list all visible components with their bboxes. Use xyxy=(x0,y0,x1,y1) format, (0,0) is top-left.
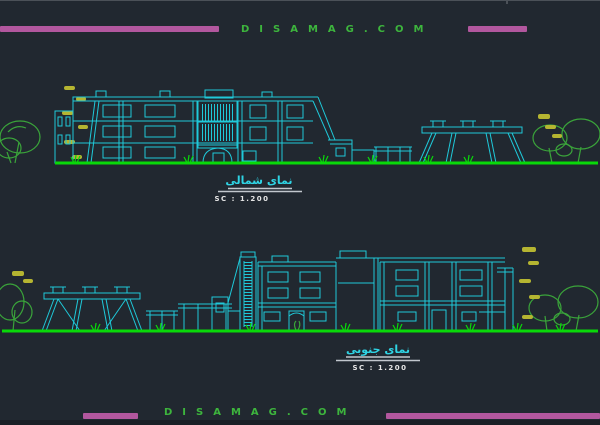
bottom-edge-strip xyxy=(0,420,600,425)
trees-south-right xyxy=(519,247,598,331)
magenta-bar-bottom-left xyxy=(83,413,138,419)
tree-south-left xyxy=(0,271,33,331)
north-elevation-drawing: نمای شمالی SC : 1.200 xyxy=(0,86,600,203)
south-elevation-scale: SC : 1.200 xyxy=(353,364,408,372)
trees-north-right xyxy=(533,114,600,163)
building-south xyxy=(212,251,513,331)
magenta-bar-bottom-right xyxy=(386,413,600,419)
south-elevation-drawing: نمای جنوبی SC : 1.200 xyxy=(0,247,598,372)
north-elevation-title: نمای شمالی xyxy=(225,174,292,187)
building-north xyxy=(55,90,352,163)
south-elevation-title: نمای جنوبی xyxy=(346,343,410,356)
tree-north-left xyxy=(0,121,40,163)
north-elevation-scale: SC : 1.200 xyxy=(215,195,270,203)
watermark-bottom: DISAMAG.COM xyxy=(164,407,356,419)
pergola-south xyxy=(42,287,142,331)
low-walls-south xyxy=(146,304,232,331)
low-walls-north xyxy=(352,147,412,163)
title-block-south: نمای جنوبی SC : 1.200 xyxy=(336,343,420,372)
cad-sheet: DISAMAG.COM xyxy=(0,0,600,425)
elevation-drawings-canvas: نمای شمالی SC : 1.200 xyxy=(0,0,600,425)
title-block-north: نمای شمالی SC : 1.200 xyxy=(215,174,303,203)
